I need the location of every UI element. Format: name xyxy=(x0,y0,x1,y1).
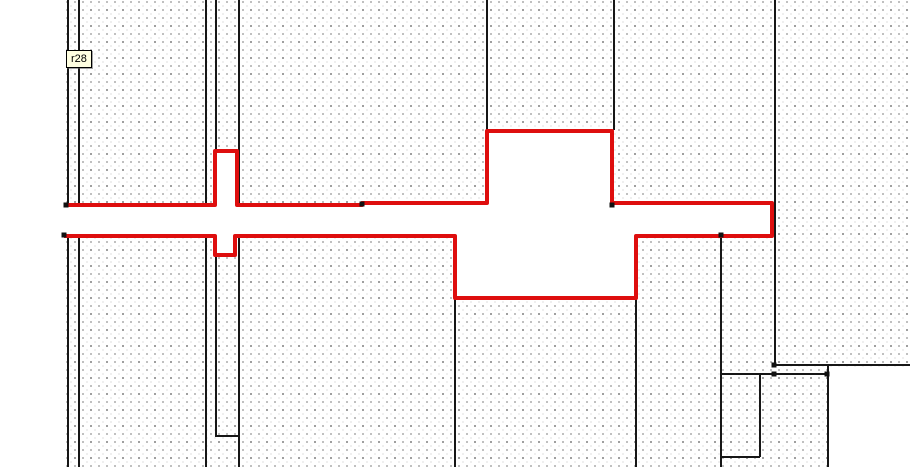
endpoint-handle[interactable] xyxy=(610,203,615,208)
endpoint-handle[interactable] xyxy=(772,372,777,377)
floorplan-svg xyxy=(0,0,910,472)
endpoint-handle[interactable] xyxy=(825,372,830,377)
endpoint-handle[interactable] xyxy=(719,233,724,238)
endpoint-handle[interactable] xyxy=(360,202,365,207)
endpoint-handle[interactable] xyxy=(62,233,67,238)
drawing-canvas[interactable]: r28 xyxy=(0,0,910,472)
endpoint-handle[interactable] xyxy=(772,363,777,368)
blank-region xyxy=(829,367,910,472)
endpoint-handle[interactable] xyxy=(64,203,69,208)
room-label-tooltip: r28 xyxy=(66,50,92,68)
room-interior-fill xyxy=(64,131,772,298)
room-label-text: r28 xyxy=(71,53,87,65)
